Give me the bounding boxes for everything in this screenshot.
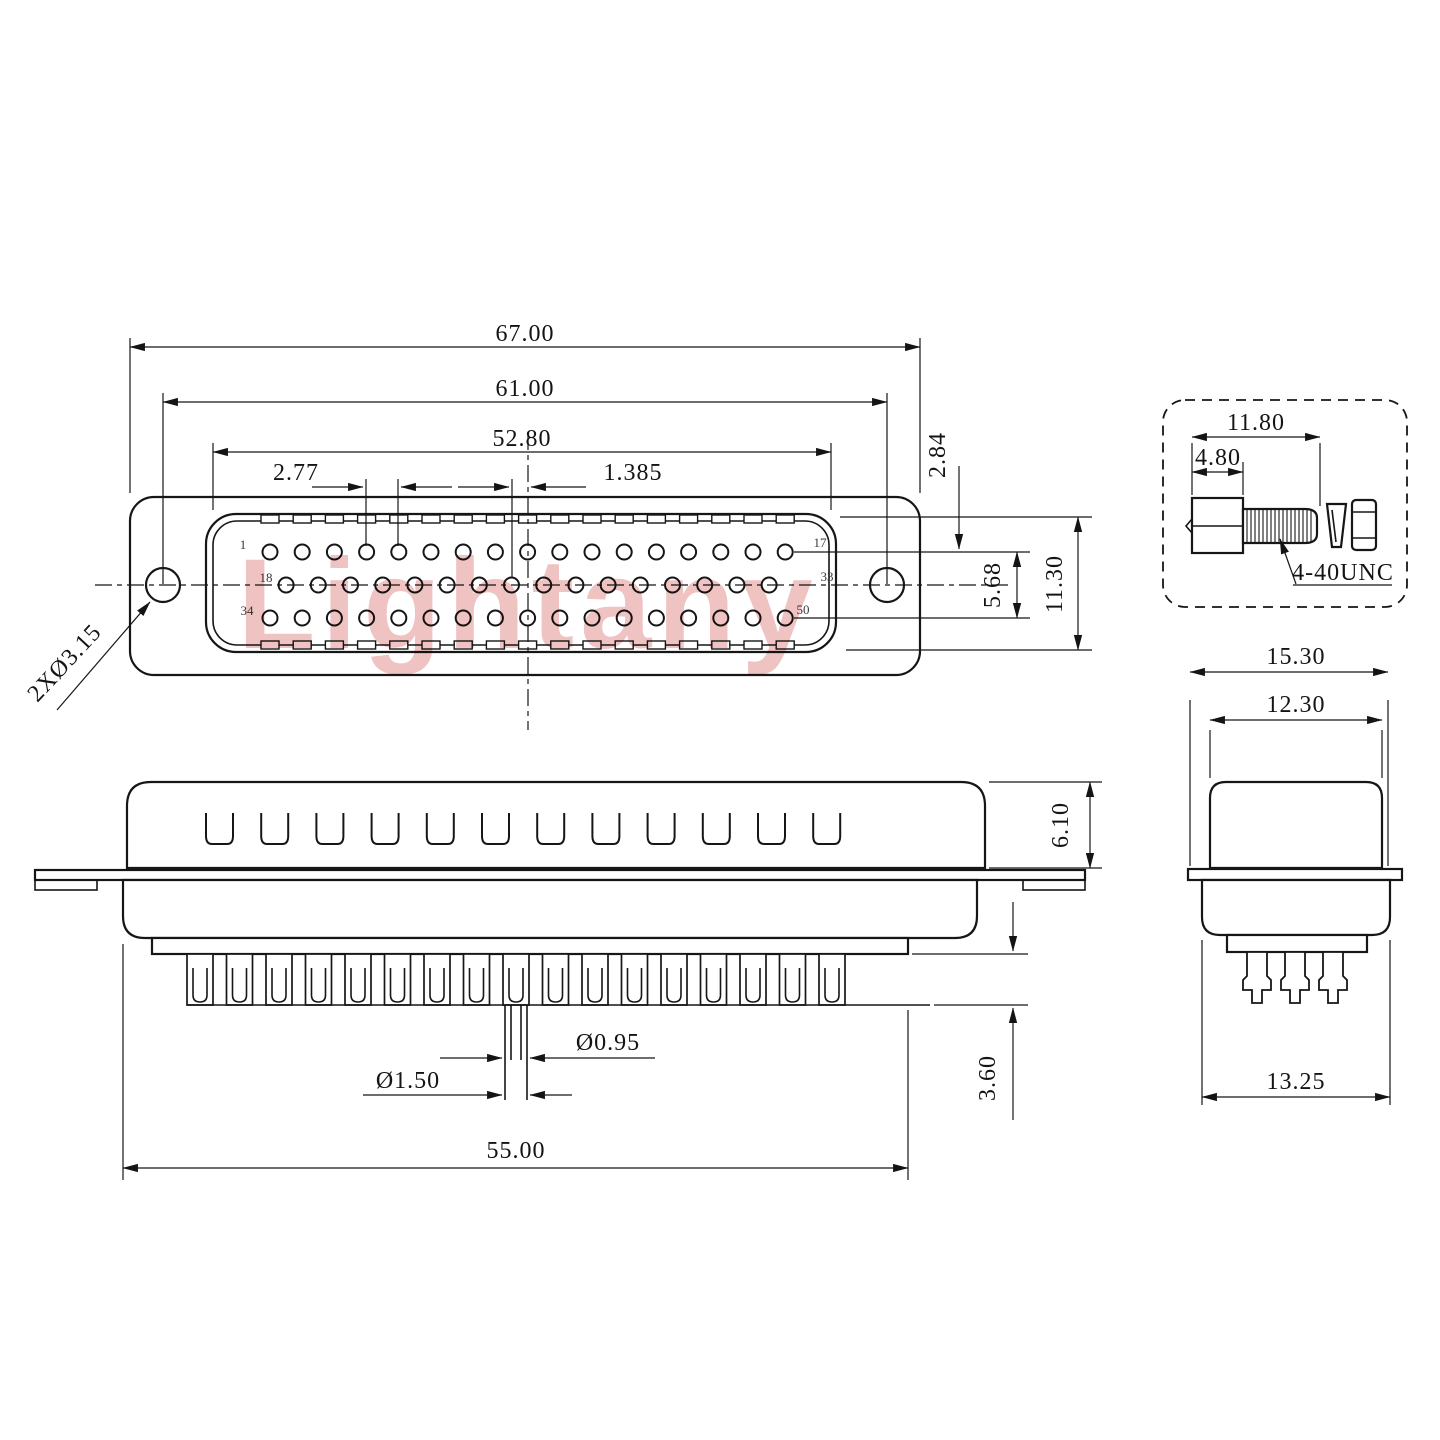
side-body <box>123 880 977 938</box>
retainer-barrel <box>1352 500 1376 550</box>
cup-tooth <box>266 954 292 1005</box>
dim-mount-hole: 2XØ3.15 <box>23 619 107 707</box>
dim-insert-height: 11.30 <box>1042 555 1068 613</box>
screw-detail: 11.80 4.80 4-40UNC <box>1163 400 1407 607</box>
watermark-text: Lightany <box>237 533 818 676</box>
insert-serration <box>454 515 472 523</box>
cup-tooth <box>622 954 648 1005</box>
cup-tooth <box>780 954 806 1005</box>
cup-tooth <box>740 954 766 1005</box>
side-flange-plate <box>35 870 1085 880</box>
screw-shank <box>1243 509 1317 543</box>
dim-cup-dia: Ø1.50 <box>376 1068 440 1094</box>
dim-half-pitch: 1.385 <box>604 460 663 486</box>
dim-screw-total: 11.80 <box>1227 410 1285 436</box>
end-pin <box>1243 952 1271 1003</box>
dim-insert-width: 52.80 <box>493 426 552 452</box>
insert-serration <box>647 515 665 523</box>
end-insulator-step <box>1227 935 1367 952</box>
cup-tooth <box>582 954 608 1005</box>
insert-serration <box>325 515 343 523</box>
dim-row-span: 5.68 <box>980 562 1006 608</box>
cup-tooth <box>227 954 253 1005</box>
insert-serration <box>293 515 311 523</box>
side-solder-cups <box>187 954 845 1005</box>
dim-shell-width: 12.30 <box>1267 692 1326 718</box>
technical-drawing-page: 1 17 18 33 34 50 67.0 <box>0 0 1440 1440</box>
insert-serration <box>712 515 730 523</box>
dim-overall-width: 67.00 <box>496 321 555 347</box>
side-flange-tab-left <box>35 880 97 890</box>
dim-end-body-width: 13.25 <box>1267 1069 1326 1095</box>
dim-cup-height: 3.60 <box>975 1055 1001 1101</box>
drawing-canvas: 1 17 18 33 34 50 67.0 <box>0 0 1440 1440</box>
end-pin <box>1281 952 1309 1003</box>
cup-tooth <box>464 954 490 1005</box>
dim-pin-dia: Ø0.95 <box>576 1030 640 1056</box>
side-shell <box>127 782 985 868</box>
dim-flange-width: 15.30 <box>1267 644 1326 670</box>
end-pin <box>1319 952 1347 1003</box>
end-shell <box>1210 782 1382 868</box>
dim-row-offset: 2.84 <box>925 432 951 478</box>
insert-serration <box>551 515 569 523</box>
end-body <box>1202 880 1390 935</box>
dim-pin-pitch: 2.77 <box>273 460 319 486</box>
cup-tooth <box>306 954 332 1005</box>
cup-tooth <box>701 954 727 1005</box>
end-flange <box>1188 869 1402 880</box>
insert-serration <box>390 515 408 523</box>
cup-tooth <box>503 954 529 1005</box>
insert-serration <box>261 515 279 523</box>
insert-serration <box>776 515 794 523</box>
cup-tooth <box>819 954 845 1005</box>
dim-screw-head: 4.80 <box>1195 445 1241 471</box>
pin-label-33: 33 <box>821 569 834 584</box>
insert-serration <box>744 515 762 523</box>
insert-serration <box>680 515 698 523</box>
insert-serration <box>422 515 440 523</box>
cup-tooth <box>661 954 687 1005</box>
insert-serration <box>615 515 633 523</box>
thread-spec-label: 4-40UNC <box>1292 560 1394 586</box>
dim-hole-span: 61.00 <box>496 376 555 402</box>
cup-tooth <box>187 954 213 1005</box>
insert-serration <box>486 515 504 523</box>
side-flange-tab-right <box>1023 880 1085 890</box>
side-view <box>35 782 1085 1100</box>
insert-serration <box>583 515 601 523</box>
end-view <box>1188 782 1402 1003</box>
end-pin-group <box>1243 952 1347 1003</box>
cup-tooth <box>345 954 371 1005</box>
dim-shell-height: 6.10 <box>1048 802 1074 848</box>
cup-tooth <box>424 954 450 1005</box>
dim-body-width: 55.00 <box>487 1138 546 1164</box>
cup-tooth <box>385 954 411 1005</box>
cup-tooth <box>543 954 569 1005</box>
side-insulator-step <box>152 938 908 954</box>
